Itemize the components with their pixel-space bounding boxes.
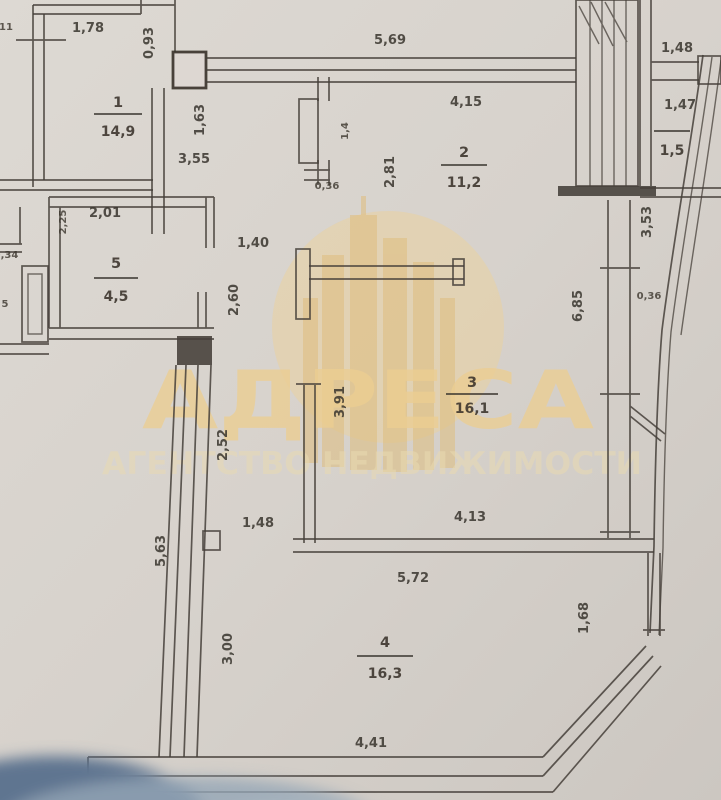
dimension-label: 1,40 [237, 236, 269, 251]
dimension-label: 1,48 [242, 516, 274, 531]
dimension-label: 1,4 [340, 122, 351, 140]
dimension-label: 2,60 [227, 284, 242, 316]
room-number: 5 [111, 256, 121, 272]
dimension-label: 3,91 [333, 386, 348, 418]
floor-plan-canvas: АДРЕСА АГЕНТСТВО НЕДВИЖИМОСТИ [0, 0, 721, 800]
dimension-label: 5 [2, 299, 9, 310]
dimension-label: 0,93 [142, 27, 157, 59]
room-area: 16,3 [368, 666, 403, 682]
column-icon [173, 52, 206, 88]
room-number: 2 [459, 145, 469, 161]
dimension-label: 0,34 [0, 250, 18, 261]
dimension-label: 11 [0, 22, 13, 33]
dimension-label: 4,41 [355, 736, 387, 751]
room-number: 3 [467, 375, 477, 391]
dimension-label: 1,63 [193, 104, 208, 136]
floor-plan-photo: АДРЕСА АГЕНТСТВО НЕДВИЖИМОСТИ [0, 0, 721, 800]
room-area: 1,5 [660, 143, 685, 159]
dimension-label: 4,13 [454, 510, 486, 525]
dimension-label: 1,78 [72, 21, 104, 36]
room-area: 11,2 [447, 175, 482, 191]
dimension-label: 1,48 [661, 41, 693, 56]
dimension-label: 2,81 [383, 156, 398, 188]
dimension-label: 4,15 [450, 95, 482, 110]
room-number: 1 [113, 95, 123, 111]
column-icon-2 [177, 336, 212, 365]
room-area: 16,1 [455, 401, 490, 417]
dimension-label: 3,00 [221, 633, 236, 665]
dimension-label: 2,25 [58, 210, 69, 235]
dimension-label: 2,01 [89, 206, 121, 221]
room-area: 14,9 [101, 124, 136, 140]
dimension-label: 0,36 [637, 291, 662, 302]
dimension-label: 3,53 [640, 206, 655, 238]
dimension-label: 3,55 [178, 152, 210, 167]
dimension-label: 5,72 [397, 571, 429, 586]
dimension-label: 0,36 [315, 181, 340, 192]
dimension-label: 1,68 [577, 602, 592, 634]
dimension-label: 6,85 [571, 290, 586, 322]
dimension-label: 5,63 [154, 535, 169, 567]
room-number: 4 [380, 635, 390, 651]
dimension-label: 1,47 [664, 98, 696, 113]
dimension-label: 5,69 [374, 33, 406, 48]
dimension-label: 2,52 [216, 429, 231, 461]
room-area: 4,5 [104, 289, 129, 305]
